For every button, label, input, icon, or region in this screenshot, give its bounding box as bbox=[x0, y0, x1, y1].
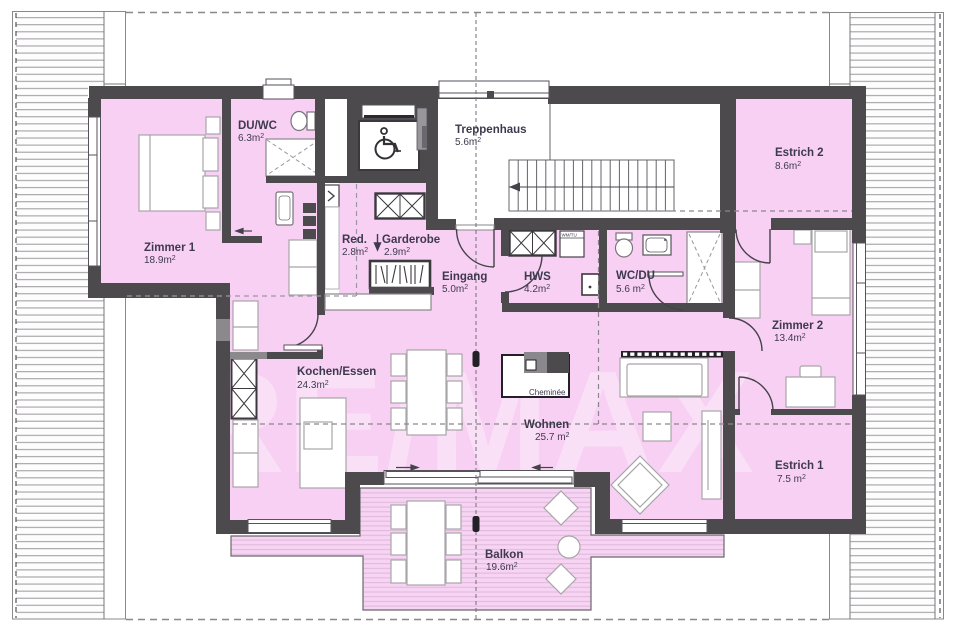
svg-text:Zimmer 2: Zimmer 2 bbox=[772, 320, 823, 332]
svg-text:25.7 m2: 25.7 m2 bbox=[535, 432, 570, 443]
svg-text:Cheminée: Cheminée bbox=[529, 388, 566, 397]
svg-text:13.4m2: 13.4m2 bbox=[774, 333, 806, 344]
svg-text:Eingang: Eingang bbox=[442, 271, 487, 283]
svg-text:Zimmer 1: Zimmer 1 bbox=[144, 242, 196, 254]
svg-text:WC/DU: WC/DU bbox=[616, 270, 655, 282]
svg-text:HWS: HWS bbox=[524, 271, 551, 283]
svg-text:5.6 m2: 5.6 m2 bbox=[616, 284, 645, 295]
svg-text:Wohnen: Wohnen bbox=[524, 419, 569, 431]
svg-text:Garderobe: Garderobe bbox=[382, 234, 440, 246]
svg-text:Estrich 2: Estrich 2 bbox=[775, 147, 824, 159]
svg-text:Estrich 1: Estrich 1 bbox=[775, 460, 824, 472]
svg-text:Treppenhaus: Treppenhaus bbox=[455, 124, 527, 136]
svg-text:7.5 m2: 7.5 m2 bbox=[777, 474, 806, 485]
svg-text:DU/WC: DU/WC bbox=[238, 120, 277, 132]
svg-text:19.6m2: 19.6m2 bbox=[486, 562, 518, 573]
svg-text:Balkon: Balkon bbox=[485, 549, 523, 561]
svg-text:WM/TU: WM/TU bbox=[562, 233, 577, 238]
svg-text:Kochen/Essen: Kochen/Essen bbox=[297, 366, 376, 378]
svg-text:24.3m2: 24.3m2 bbox=[297, 380, 329, 391]
svg-text:18.9m2: 18.9m2 bbox=[144, 255, 176, 266]
svg-text:Red.: Red. bbox=[342, 234, 367, 246]
